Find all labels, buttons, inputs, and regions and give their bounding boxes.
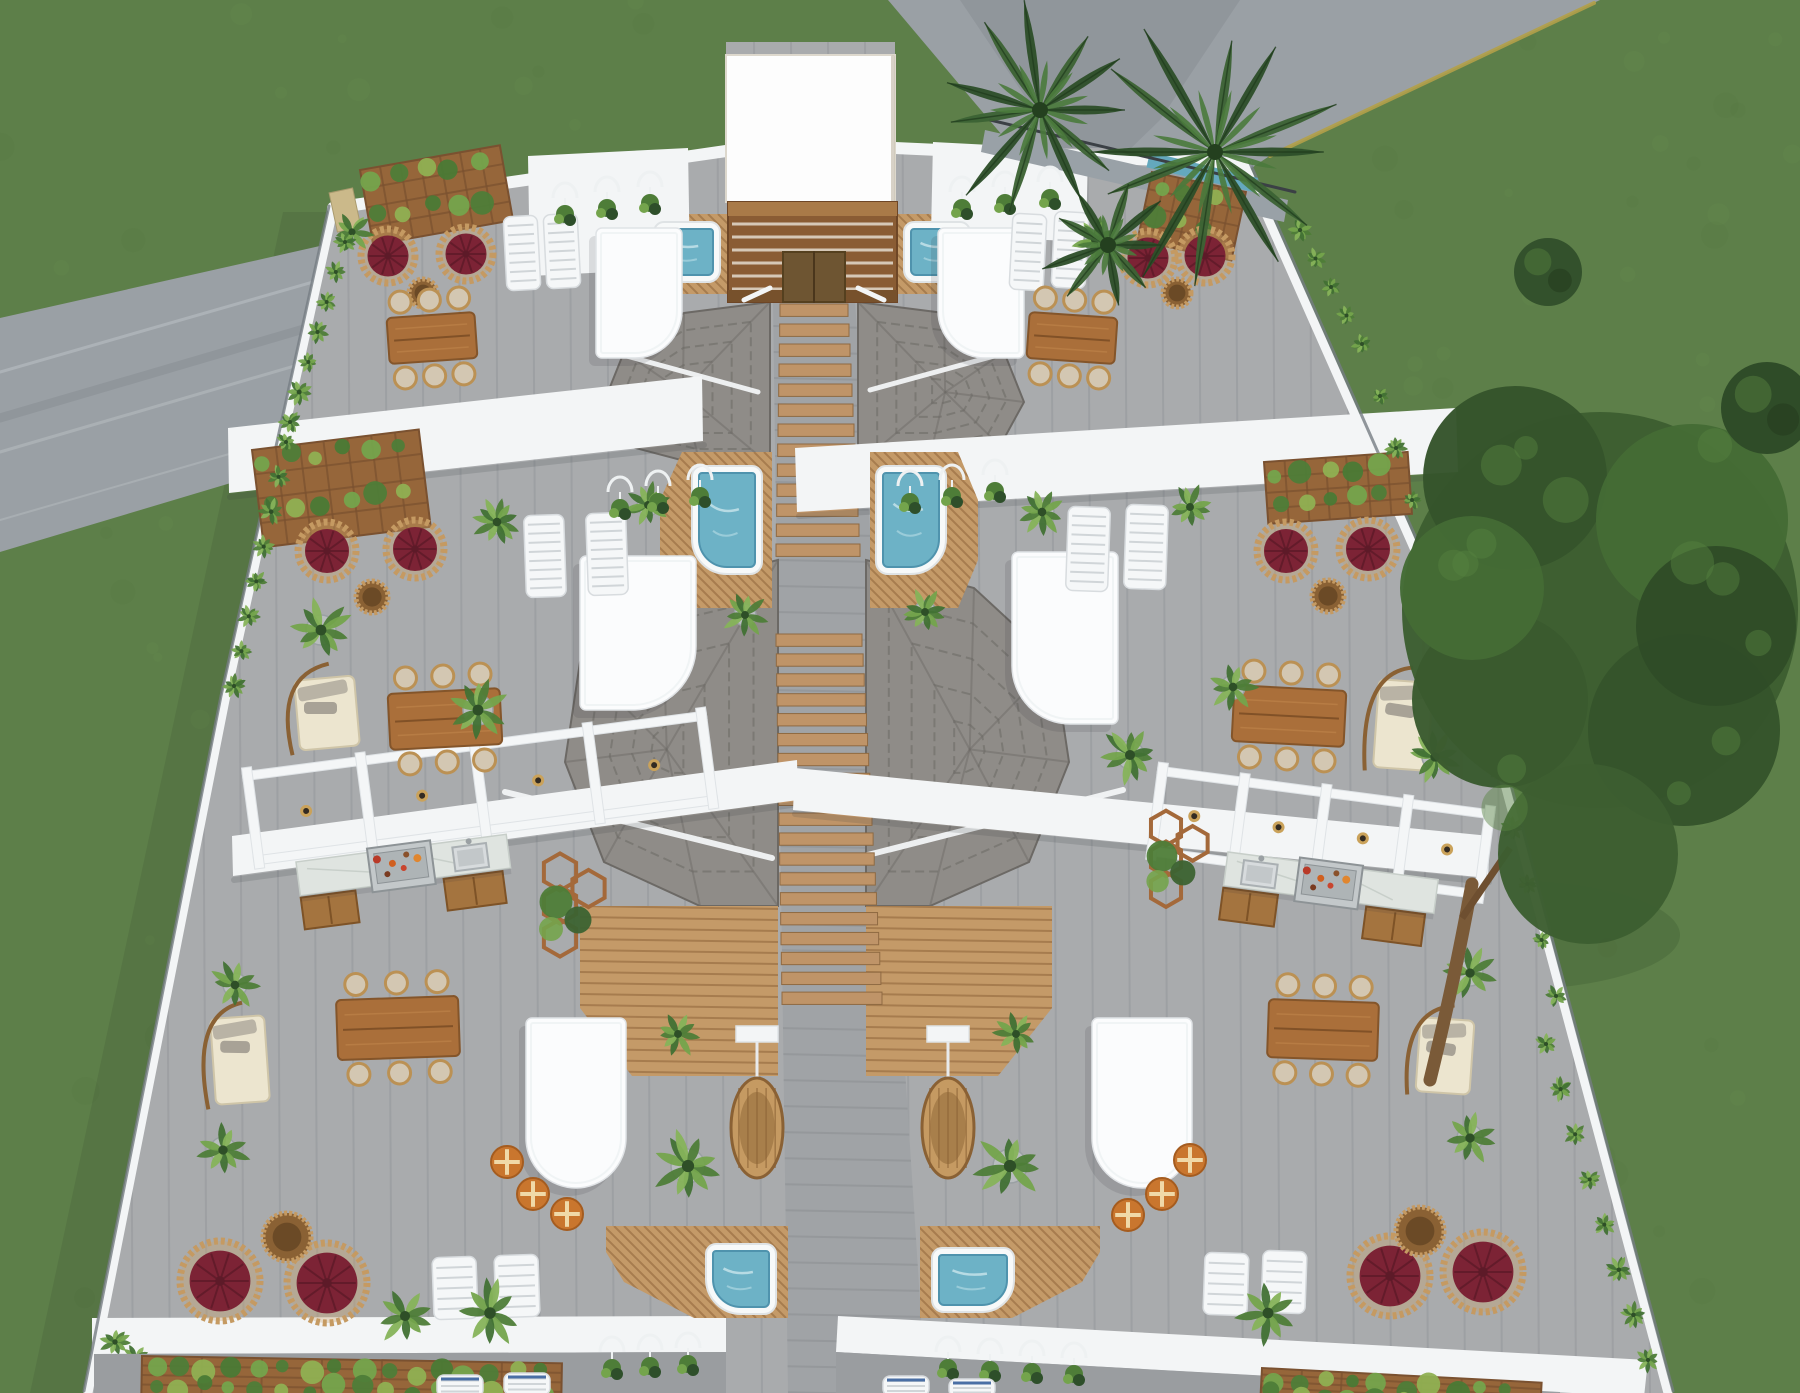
rooftop-aerial-render — [0, 0, 1800, 1393]
hot-tub-bottom-left — [706, 1244, 776, 1314]
wicker-side-table — [356, 581, 388, 613]
papasan-chair — [298, 522, 356, 580]
hot-tub-bottom-right — [932, 1248, 1014, 1312]
pouf-stool — [551, 1198, 583, 1230]
pouf-stool — [1112, 1199, 1144, 1231]
sun-lounger — [504, 1373, 550, 1393]
pouf-stool — [1146, 1178, 1178, 1210]
dining-set — [1025, 286, 1120, 390]
wicker-side-table — [1312, 580, 1344, 612]
sun-lounger — [1124, 504, 1169, 589]
pouf-stool — [517, 1178, 549, 1210]
sun-lounger — [586, 512, 629, 595]
papasan-chair — [386, 520, 444, 578]
sun-lounger — [1009, 213, 1047, 291]
stair-core-bottom-left — [519, 1018, 626, 1196]
stair-tower-roof — [726, 55, 895, 202]
wicker-side-table — [1163, 279, 1191, 307]
papasan-chair — [180, 1241, 260, 1321]
roadside-bush — [1514, 238, 1582, 306]
sun-lounger — [437, 1375, 483, 1393]
sun-lounger — [1203, 1252, 1249, 1315]
pouf-stool — [491, 1146, 523, 1178]
sun-lounger — [524, 514, 567, 597]
wicker-side-table — [263, 1213, 311, 1261]
hot-tub-mid-right — [876, 466, 946, 574]
sun-lounger — [543, 213, 581, 289]
pouf-stool — [1174, 1144, 1206, 1176]
vertical-garden-mid-right — [1264, 451, 1412, 524]
wicker-side-table — [1396, 1207, 1444, 1255]
sun-lounger — [883, 1376, 929, 1393]
papasan-chair — [1257, 522, 1315, 580]
sun-lounger — [503, 215, 541, 291]
papasan-chair — [1443, 1232, 1523, 1312]
dining-set — [1230, 659, 1347, 773]
papasan-chair — [361, 229, 415, 283]
sun-lounger — [1066, 506, 1111, 591]
sun-lounger — [949, 1379, 995, 1393]
papasan-chair — [1339, 520, 1397, 578]
stair-core-top-right — [931, 228, 1024, 366]
papasan-chair — [439, 227, 493, 281]
dining-set — [335, 970, 461, 1086]
dining-set — [385, 286, 480, 390]
hot-tub-mid-left — [692, 466, 762, 574]
dining-set — [1266, 973, 1380, 1087]
render-viewport — [0, 0, 1800, 1393]
